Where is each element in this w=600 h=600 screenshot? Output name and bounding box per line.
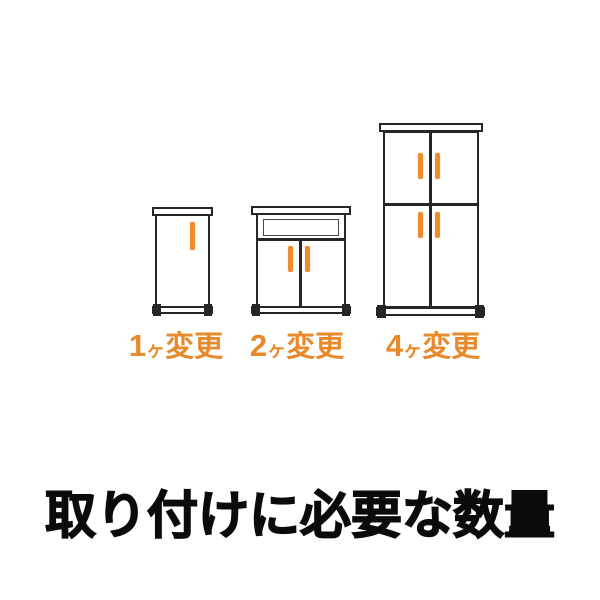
cabinet-3-counter: ヶ (403, 340, 422, 361)
cabinet-2-left-door-handle-icon (288, 246, 293, 272)
cabinet-3-count: 4 (386, 328, 403, 363)
cabinet-2-open-shelf (263, 219, 339, 236)
cabinet-2-left-foot (252, 304, 260, 316)
cabinet-1-left-foot (153, 304, 161, 316)
cabinet-2-count: 2 (250, 328, 267, 363)
cabinet-3-middle-divider (384, 203, 478, 206)
cabinet-3-lower-right-handle-icon (435, 212, 440, 238)
page-title: 取り付けに必要な数量 (0, 474, 600, 548)
cabinet-3-upper-right-handle-icon (435, 153, 440, 179)
cabinet-1-counter: ヶ (146, 340, 165, 361)
cabinet-3-lower-left-handle-icon (418, 212, 423, 238)
cabinet-1-door-handle-icon (190, 222, 195, 250)
cabinet-1-door (155, 214, 210, 308)
cabinet-2-suffix: 変更 (286, 331, 344, 363)
installation-quantity-diagram: 1ヶ変更 2ヶ変更 4ヶ変更 取り付けに必要な数量 (0, 0, 600, 600)
cabinet-2-base (251, 306, 351, 314)
cabinet-3-left-foot (377, 305, 386, 318)
cabinet-2-door-divider (299, 241, 302, 307)
cabinet-2-counter: ヶ (267, 340, 286, 361)
cabinet-3-upper-left-handle-icon (418, 153, 423, 179)
cabinet-2-right-foot (342, 304, 350, 316)
cabinet-3-base (376, 307, 485, 316)
cabinet-3-suffix: 変更 (422, 331, 480, 363)
cabinet-3-center-divider (429, 132, 432, 307)
cabinet-2-right-door-handle-icon (305, 246, 310, 272)
cabinet-1-right-foot (204, 304, 212, 316)
cabinet-1-count: 1 (129, 328, 146, 363)
cabinet-3-label: 4ヶ変更 (348, 330, 518, 368)
cabinet-3-right-foot (475, 305, 484, 318)
